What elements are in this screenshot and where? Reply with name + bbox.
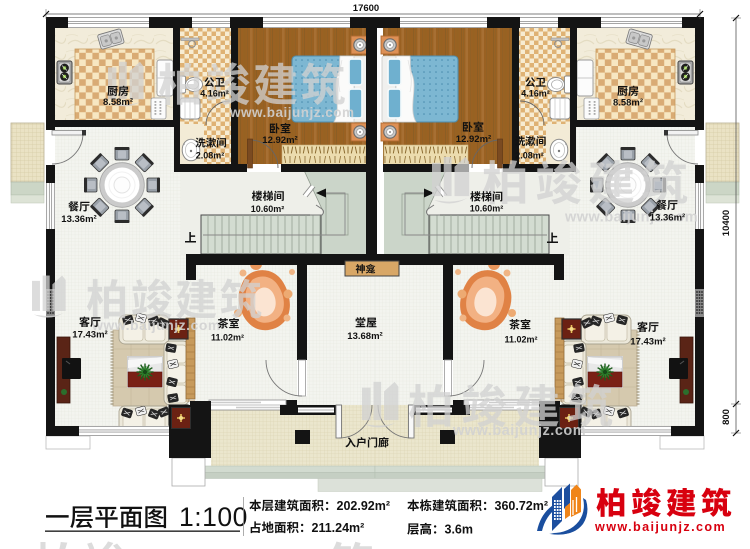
svg-text:13.36m²: 13.36m² xyxy=(61,214,96,225)
svg-text:2.08m²: 2.08m² xyxy=(196,151,225,161)
svg-text:8.58m²: 8.58m² xyxy=(613,98,643,109)
svg-text:211.24m²: 211.24m² xyxy=(312,521,365,535)
svg-text:4.16m²: 4.16m² xyxy=(200,89,229,99)
svg-text:4.16m²: 4.16m² xyxy=(521,89,550,99)
svg-text:www.baijunjz.com: www.baijunjz.com xyxy=(594,520,726,534)
svg-text:www.baijunjz.com: www.baijunjz.com xyxy=(91,317,221,333)
svg-text:1:100: 1:100 xyxy=(179,502,248,532)
svg-text:13.36m²: 13.36m² xyxy=(650,213,685,224)
svg-text:360.72m²: 360.72m² xyxy=(495,499,549,513)
svg-text:www.baijunjz.com: www.baijunjz.com xyxy=(452,423,586,439)
svg-text:12.92m²: 12.92m² xyxy=(456,134,491,145)
svg-text:17.43m²: 17.43m² xyxy=(72,330,107,341)
svg-text:3.6m: 3.6m xyxy=(445,523,474,537)
svg-text:13.68m²: 13.68m² xyxy=(347,331,382,342)
svg-text:10.60m²: 10.60m² xyxy=(470,204,504,214)
svg-text:17.43m²: 17.43m² xyxy=(630,337,665,348)
svg-text:11.02m²: 11.02m² xyxy=(211,333,244,343)
svg-text:17600: 17600 xyxy=(353,3,379,14)
svg-text:10400: 10400 xyxy=(721,210,732,236)
svg-text:202.92m²: 202.92m² xyxy=(337,499,391,513)
svg-text:10.60m²: 10.60m² xyxy=(251,204,285,214)
svg-text:11.02m²: 11.02m² xyxy=(504,335,537,345)
svg-text:www.baijunjz.com: www.baijunjz.com xyxy=(229,105,355,120)
svg-text:2.08m²: 2.08m² xyxy=(515,151,544,161)
svg-text:800: 800 xyxy=(721,409,732,425)
svg-text:12.92m²: 12.92m² xyxy=(262,135,297,146)
svg-text:8.58m²: 8.58m² xyxy=(103,97,133,108)
